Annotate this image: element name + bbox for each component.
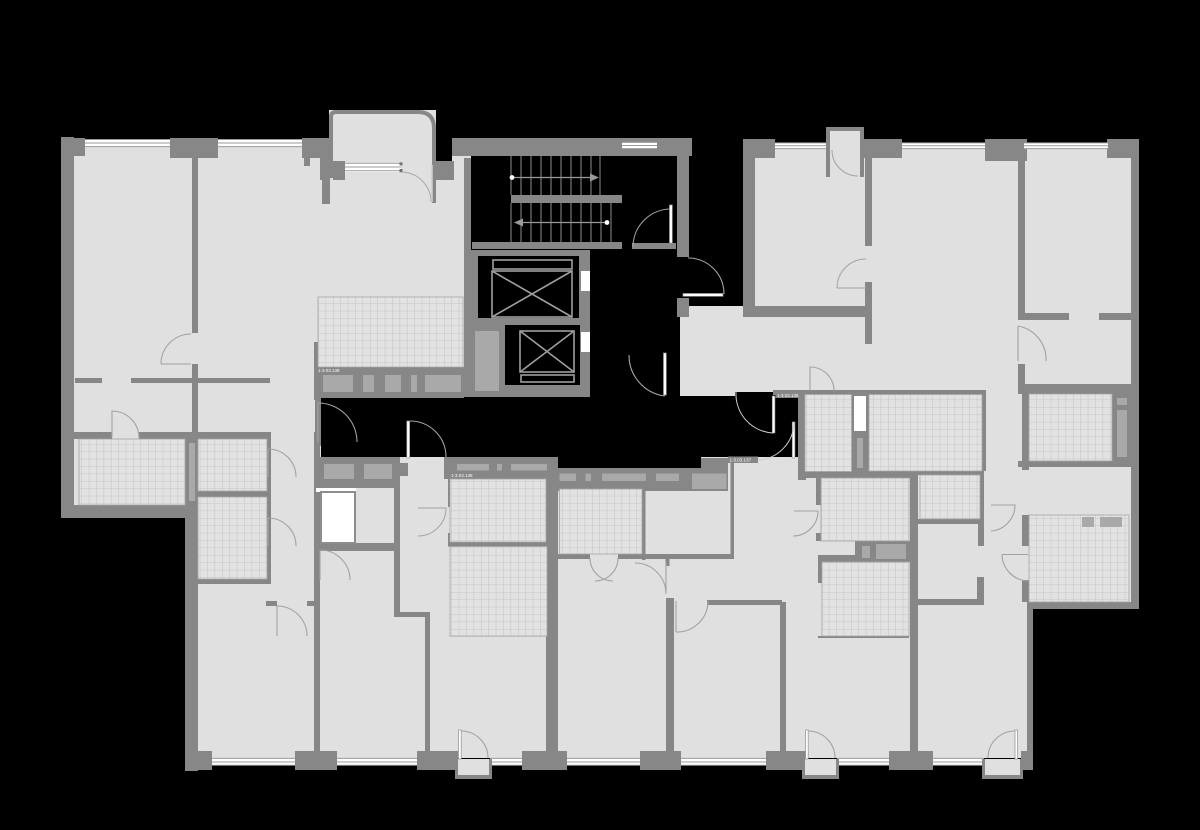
svg-text:1-3.03.138: 1-3.03.138 [451,473,473,478]
svg-text:1-3.03.136: 1-3.03.136 [777,393,799,398]
svg-text:1-3.03.139: 1-3.03.139 [318,368,340,373]
svg-text:1-3.03.137: 1-3.03.137 [730,458,752,463]
